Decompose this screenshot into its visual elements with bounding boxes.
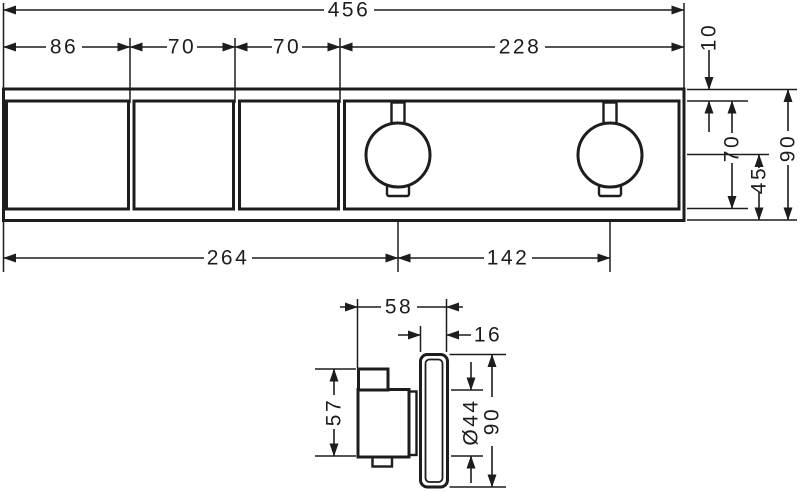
side-view: [358, 355, 448, 488]
dim-label-valve-height: 57: [323, 398, 346, 426]
right-knob-dial: [578, 123, 642, 187]
dim-label-total-depth: 58: [385, 296, 413, 319]
dim-label-plate-depth: 16: [474, 324, 502, 347]
dim-label-plate-height: 90: [481, 407, 504, 435]
escutcheon-plate-side: [421, 355, 448, 488]
front-view: [4, 89, 685, 221]
technical-drawing-page: 456 86 70 70 228 10 70 45 90 264: [0, 0, 800, 492]
dim-label-seg-86: 86: [50, 36, 78, 59]
dimension-drawing: 456 86 70 70 228 10 70 45 90 264: [0, 0, 800, 492]
dim-label-seg-228: 228: [499, 36, 542, 59]
dim-label-total-width: 456: [328, 0, 371, 22]
valve-body: [358, 390, 409, 458]
dim-label-seg-70a: 70: [168, 36, 196, 59]
select-button-panel-3: [240, 101, 339, 209]
dim-label-left-to-knob: 264: [207, 247, 250, 270]
dim-label-edge-inset: 10: [698, 23, 721, 51]
select-button-panel-1: [7, 101, 129, 209]
dim-label-seg-70b: 70: [273, 36, 301, 59]
valve-top-step: [359, 369, 389, 390]
dim-label-total-height: 90: [777, 134, 800, 162]
dim-label-inner-height: 70: [721, 134, 744, 162]
dim-label-knob-diameter: Ø44: [460, 398, 483, 445]
select-button-panel-2: [134, 101, 234, 209]
left-knob-dial: [366, 123, 430, 187]
dim-label-knob-spacing: 142: [487, 247, 530, 270]
dim-label-center-to-bottom: 45: [748, 166, 771, 194]
